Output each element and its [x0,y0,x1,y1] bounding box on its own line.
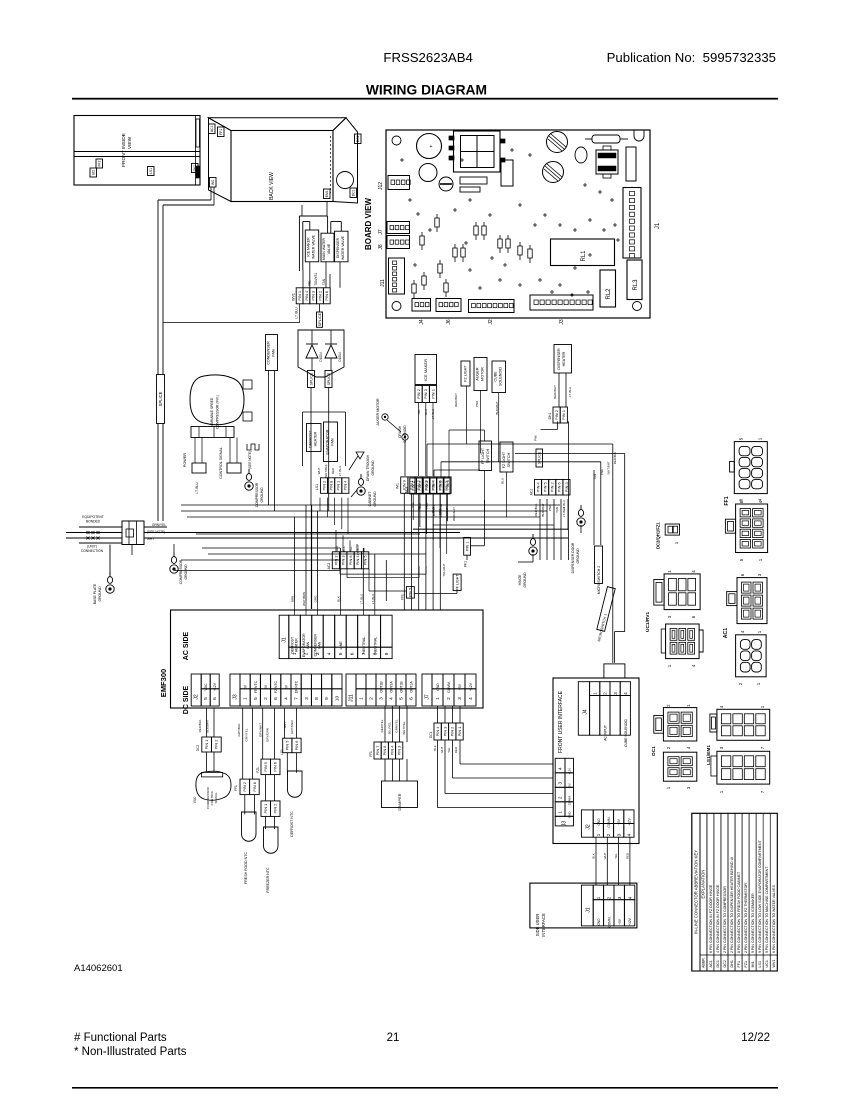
svg-text:GND: GND [568,812,572,818]
svg-text:2: 2 [603,692,609,695]
svg-text:FF1: FF1 [724,496,730,505]
svg-text:WIRING DIAGRAM: WIRING DIAGRAM [366,83,487,98]
svg-text:2: 2 [446,697,452,700]
svg-text:WHT/BHT: WHT/BHT [607,461,611,474]
svg-text:SIGNAL: SIGNAL [214,792,218,803]
svg-text:6: 6 [409,697,415,700]
svg-text:COMPRESSOR: COMPRESSOR [179,559,183,584]
svg-text:PIN 1: PIN 1 [457,727,462,737]
svg-text:3: 3 [558,782,564,785]
svg-text:PIN 2: PIN 2 [550,482,555,492]
svg-text:2: 2 [369,697,375,700]
svg-text:RL1: RL1 [581,250,587,262]
svg-text:SPLICE: SPLICE [327,372,331,385]
svg-text:3: 3 [613,692,619,695]
svg-text:BLK/WHT: BLK/WHT [206,719,210,733]
svg-text:PIN 3: PIN 3 [424,481,429,491]
svg-text:DEFROST NTC: DEFROST NTC [290,811,294,837]
svg-text:YEL: YEL [614,853,618,859]
svg-text:YEL: YEL [349,546,353,552]
svg-text:3: 3 [304,697,310,700]
svg-text:+12V: +12V [627,817,631,825]
svg-text:PIN 6: PIN 6 [324,291,329,301]
svg-text:FZ LIGHT: FZ LIGHT [502,451,506,468]
svg-text:WHT/YEL: WHT/YEL [402,721,406,735]
svg-text:FF1: FF1 [464,561,468,567]
svg-text:+: + [430,144,433,150]
svg-text:FRSS2623AB4: FRSS2623AB4 [383,50,472,65]
svg-text:TAN/YEL: TAN/YEL [314,272,318,285]
svg-text:4: 4 [468,697,474,700]
svg-text:PIN 2: PIN 2 [554,410,559,420]
svg-text:PIN 4: PIN 4 [417,480,422,491]
svg-text:2 PIN CONNECTION TO DISPENSER: 2 PIN CONNECTION TO DISPENSER HEATER BEH… [730,857,734,953]
svg-text:LS1: LS1 [315,484,319,490]
svg-text:COMM.: COMM. [607,816,611,827]
svg-text:RED/WHT: RED/WHT [439,503,443,516]
svg-text:J4: J4 [419,319,425,325]
svg-text:HINGE: HINGE [518,574,522,585]
svg-text:FF LIGHT: FF LIGHT [455,574,459,591]
svg-text:PIN 6: PIN 6 [273,762,278,772]
svg-text:YEL: YEL [447,747,451,753]
svg-text:4: 4 [558,767,564,770]
svg-text:DISPENSER: DISPENSER [557,348,561,370]
svg-text:PNK: PNK [548,505,552,511]
svg-text:LS1: LS1 [758,961,762,968]
svg-text:MOTOR: MOTOR [481,367,485,381]
svg-text:GRY/YEL: GRY/YEL [245,728,249,741]
svg-text:FF1: FF1 [234,785,238,791]
svg-text:DC1: DC1 [429,732,433,739]
svg-text:LT. BLU: LT. BLU [195,482,199,494]
svg-text:PIN 2: PIN 2 [273,804,278,814]
svg-text:7: 7 [294,697,300,700]
svg-text:A14062601: A14062601 [74,963,123,974]
svg-text:PIN 4: PIN 4 [435,726,440,737]
svg-text:AUGER MOTOR: AUGER MOTOR [376,398,380,425]
svg-text:FZ1: FZ1 [256,767,260,773]
svg-text:FF1: FF1 [737,961,741,968]
svg-text:SWITCH: SWITCH [486,448,490,463]
svg-text:YEL: YEL [411,502,415,508]
svg-text:GRY/BLK: GRY/BLK [237,724,241,737]
svg-text:DC2: DC2 [723,960,727,967]
svg-text:1: 1 [592,692,598,695]
svg-text:VIEW: VIEW [127,136,133,149]
svg-text:WHT: WHT [440,746,444,753]
svg-text:AC3: AC3 [405,487,409,494]
svg-text:LINE: LINE [339,641,343,650]
svg-text:EVAPORATOR: EVAPORATOR [326,429,330,454]
svg-text:+5V: +5V [618,918,622,925]
svg-text:PIN 1: PIN 1 [204,740,209,750]
svg-text:DC1: DC1 [351,189,355,196]
svg-text:(SEE NOTE): (SEE NOTE) [248,451,252,469]
svg-text:GND: GND [436,683,440,691]
svg-text:+5V: +5V [458,683,462,690]
svg-text:DAMPER: DAMPER [397,793,402,810]
svg-text:FF LIGHT: FF LIGHT [481,447,485,464]
svg-text:6: 6 [350,652,356,655]
svg-text:PIN 2: PIN 2 [416,389,421,399]
svg-text:COMM.: COMM. [607,916,611,927]
svg-text:J11: J11 [349,694,355,702]
svg-text:1: 1 [596,896,602,899]
svg-text:DC2: DC2 [356,135,360,142]
svg-text:BLK: BLK [592,853,596,859]
svg-text:ICE MAKER: ICE MAKER [307,237,311,257]
svg-text:5V: 5V [264,684,268,689]
svg-text:PIN 3: PIN 3 [442,727,447,737]
svg-text:PIN 2: PIN 2 [242,782,247,792]
svg-text:TAN: TAN [322,278,326,285]
svg-text:PIN 3: PIN 3 [564,482,569,492]
svg-text:RED/WHT: RED/WHT [553,385,557,399]
svg-text:UC1/RV1: UC1/RV1 [645,611,651,632]
svg-text:PNK: PNK [600,469,604,475]
svg-text:6 PIN CONNECTION TO WATER VALV: 6 PIN CONNECTION TO WATER VALVES [772,884,776,953]
svg-text:BLK: BLK [336,596,340,602]
svg-text:PIN 5: PIN 5 [263,762,268,772]
svg-text:LT. BLU: LT. BLU [359,594,363,604]
svg-text:FRONT USER INTERFACE: FRONT USER INTERFACE [558,690,564,753]
svg-text:AC2: AC2 [327,563,331,570]
svg-text:6 PIN CONNECTION IN FZ DOOR HI: 6 PIN CONNECTION IN FZ DOOR HINGE [709,884,713,953]
svg-text:LT. BLU: LT. BLU [568,387,572,397]
svg-text:OUT2B: OUT2B [380,681,384,693]
svg-text:GROUND: GROUND [371,460,375,476]
svg-text:RED: RED [625,853,629,859]
svg-text:2: 2 [263,697,269,700]
svg-text:* Non-Illustrated Parts: * Non-Illustrated Parts [74,1046,187,1058]
svg-text:PIN 5: PIN 5 [285,741,290,751]
svg-text:FAN: FAN [331,438,335,446]
svg-text:GROUND: GROUND [184,564,188,580]
svg-text:PIN 3: PIN 3 [397,746,402,756]
svg-text:J3: J3 [559,319,565,325]
svg-text:D1004: D1004 [338,352,342,362]
svg-text:2: 2 [607,896,613,899]
svg-text:SWITCH: SWITCH [507,452,511,467]
svg-text:GRN/YEL: GRN/YEL [395,719,399,733]
svg-text:9 PIN CONNECTION TO LOW SIDE E: 9 PIN CONNECTION TO LOW SIDE EVAPORATOR … [758,839,762,953]
svg-text:2: 2 [606,833,612,836]
svg-text:4: 4 [327,652,333,655]
svg-text:COMM.: COMM. [568,795,572,805]
svg-text:10: 10 [334,696,340,702]
svg-text:BLU/YEL: BLU/YEL [388,722,392,735]
svg-text:2: 2 [558,796,564,799]
svg-text:PIN 2: PIN 2 [411,481,416,491]
svg-text:3: 3 [457,697,463,700]
svg-text:FF1: FF1 [401,594,405,600]
svg-text:J7: J7 [378,229,384,235]
svg-text:WATER VALVE: WATER VALVE [312,234,316,259]
svg-text:BLK: BLK [418,503,422,508]
svg-text:PIN 4: PIN 4 [389,745,394,756]
svg-text:PIN 3: PIN 3 [444,481,449,491]
svg-text:PIN 4: PIN 4 [343,480,348,491]
svg-text:RED: RED [454,747,458,753]
svg-text:BLK/WHT: BLK/WHT [432,503,436,516]
svg-text:NEUTRAL: NEUTRAL [362,637,366,654]
svg-text:FF NTC: FF NTC [254,680,258,693]
svg-text:LT. BLU: LT. BLU [295,307,299,319]
svg-text:SOLENOID: SOLENOID [499,367,503,386]
svg-text:RED/WHT: RED/WHT [452,507,456,521]
svg-text:GRN/YEL: GRN/YEL [152,523,166,527]
svg-text:FAN: FAN [306,641,310,648]
svg-text:PIN 8: PIN 8 [382,746,387,756]
svg-text:POWER: POWER [183,453,187,468]
svg-text:FZ1: FZ1 [744,961,748,968]
svg-text:J1: J1 [655,222,661,229]
svg-text:5V: 5V [244,684,248,689]
svg-text:VARIABLE SPEED: VARIABLE SPEED [210,397,214,426]
svg-text:GND: GND [597,818,601,826]
svg-text:WHT/BLK: WHT/BLK [324,464,328,477]
svg-text:PIN 2: PIN 2 [450,727,455,737]
svg-text:INTERFACE: INTERFACE [541,913,546,937]
svg-text:PIN 2: PIN 2 [214,740,219,750]
svg-text:VALVE: VALVE [327,243,331,254]
svg-text:CRUSH: CRUSH [398,425,402,438]
svg-text:ORG: ORG [314,595,318,603]
svg-text:2 PIN CONNECTION TO COMPRESSOR: 2 PIN CONNECTION TO COMPRESSOR [723,886,727,953]
svg-text:FF1: FF1 [219,129,223,135]
svg-text:RED/BLK: RED/BLK [198,720,202,733]
svg-text:PIN 4: PIN 4 [431,480,436,491]
svg-text:J12: J12 [378,182,384,190]
svg-text:FREEZER NTC: FREEZER NTC [266,867,270,893]
svg-text:WHT: WHT [603,852,607,859]
svg-text:BASE PLATE: BASE PLATE [93,583,97,604]
svg-text:FRONT INSIDE: FRONT INSIDE [121,133,127,167]
svg-text:PNK: PNK [475,401,479,407]
svg-text:YEL: YEL [417,409,421,415]
svg-text:AUGER: AUGER [476,367,480,380]
svg-text:BONDED: BONDED [86,520,101,524]
svg-text:HEATER: HEATER [314,431,318,446]
svg-text:(UNIT): (UNIT) [87,545,97,549]
svg-text:J2: J2 [586,824,592,830]
svg-text:4: 4 [623,692,629,695]
svg-text:DC2/QH1/FZ1: DC2/QH1/FZ1 [656,522,661,549]
svg-text:J6: J6 [446,319,452,325]
svg-text:4: 4 [389,697,395,700]
svg-text:DF NTC: DF NTC [295,680,299,693]
svg-text:ICE MAKER: ICE MAKER [423,359,428,381]
svg-text:GRY/WHT: GRY/WHT [259,723,263,737]
svg-text:21: 21 [387,1032,400,1044]
svg-text:AC SIDE: AC SIDE [183,631,190,660]
svg-text:PIN 3: PIN 3 [341,555,346,565]
svg-text:BLK: BLK [433,745,437,751]
svg-text:+12V: +12V [568,768,572,775]
svg-text:PIN 5: PIN 5 [409,588,413,597]
svg-text:EXPLANATION: EXPLANATION [701,870,706,899]
svg-text:HEATER: HEATER [562,351,566,366]
svg-text:PIN 4: PIN 4 [535,482,540,493]
svg-text:GRY/GRN: GRY/GRN [266,728,270,742]
svg-text:DISPENSER: DISPENSER [336,237,340,258]
svg-text:J1: J1 [282,637,288,643]
svg-text:CONDENSER: CONDENSER [267,341,271,365]
svg-text:PIN 1: PIN 1 [430,389,435,399]
svg-text:IN-LINE CONNECTOR ABBREVIATION: IN-LINE CONNECTOR ABBREVIATION KEY [694,850,699,934]
svg-text:LT. BLU: LT. BLU [371,594,375,604]
svg-text:LT. BLU: LT. BLU [338,466,342,476]
svg-text:1: 1 [596,833,602,836]
svg-text:MAIN WATER: MAIN WATER [322,238,326,260]
svg-text:PIN 2: PIN 2 [317,291,322,301]
svg-text:BLK: BLK [342,546,346,552]
svg-text:J2: J2 [488,319,494,325]
svg-text:OUT1B: OUT1B [400,681,404,693]
svg-text:SPLICE: SPLICE [538,451,542,464]
svg-text:4: 4 [627,896,633,899]
svg-text:BLU: BLU [501,478,505,484]
svg-text:5V: 5V [284,684,288,689]
svg-text:PIN 4: PIN 4 [355,555,360,566]
svg-text:PIN 1: PIN 1 [297,291,302,301]
svg-text:SPLICE: SPLICE [158,391,163,406]
svg-text:COMPRESSOR: COMPRESSOR [255,482,259,507]
svg-text:WHT: WHT [317,467,321,474]
svg-text:PIN 7: PIN 7 [375,746,380,756]
svg-text:OUT1A: OUT1A [410,681,414,693]
svg-text:UC1: UC1 [765,960,769,967]
svg-text:9 PIN CONNECTION TO ICEMAKER: 9 PIN CONNECTION TO ICEMAKER [751,893,755,953]
svg-text:12/22: 12/22 [741,1032,770,1044]
svg-text:CUBE: CUBE [494,371,498,382]
svg-text:LS1: LS1 [149,168,153,174]
svg-text:1: 1 [359,697,365,700]
svg-text:BACK VIEW: BACK VIEW [269,172,275,200]
svg-text:PIN 4: PIN 4 [304,290,309,301]
svg-text:OUT2A: OUT2A [390,681,394,693]
svg-text:AC1: AC1 [709,960,713,967]
svg-text:GROUND: GROUND [98,586,102,602]
svg-text:J3: J3 [562,821,568,827]
svg-text:GND: GND [597,918,601,926]
svg-text:9: 9 [384,652,390,655]
svg-text:9 PIN CONNECTION TO MACHINE CO: 9 PIN CONNECTION TO MACHINE COMPARTMENT [765,866,769,953]
svg-text:WATER VALVE: WATER VALVE [341,235,345,260]
svg-text:DC1: DC1 [716,960,720,967]
svg-text:COMPRESSOR (INV.): COMPRESSOR (INV.) [216,395,220,429]
svg-text:PIN 8: PIN 8 [329,481,334,491]
svg-text:AC INPUT: AC INPUT [603,725,607,741]
svg-text:PIN 2: PIN 2 [321,481,326,491]
svg-text:FZ NTC: FZ NTC [274,680,278,693]
svg-text:6: 6 [212,697,218,700]
svg-text:AC1: AC1 [723,628,729,638]
svg-text:J11: J11 [380,279,386,287]
svg-text:RED/BLK: RED/BLK [534,504,538,517]
svg-text:TAN: TAN [593,474,597,480]
svg-text:PIN 1: PIN 1 [336,481,341,491]
svg-text:PIN 6: PIN 6 [252,782,257,792]
svg-text:3: 3 [616,833,622,836]
svg-text:RED/WHT: RED/WHT [454,393,458,407]
svg-text:GROUND: GROUND [260,487,264,503]
svg-text:1: 1 [435,697,441,700]
svg-text:DC2: DC2 [196,745,200,752]
svg-text:GRY: GRY [283,722,287,728]
svg-text:BLK/WHT: BLK/WHT [541,503,545,517]
svg-text:+12V: +12V [469,682,473,691]
svg-text:5: 5 [399,697,405,700]
svg-text:NEUTRAL: NEUTRAL [374,637,378,654]
svg-text:VSC: VSC [193,796,197,803]
svg-text:YEL/WHT: YEL/WHT [442,563,446,576]
svg-text:IM1: IM1 [211,179,215,185]
svg-text:+5V: +5V [617,818,621,825]
svg-text:+12V: +12V [213,682,217,691]
svg-text:EQUIPOTENT: EQUIPOTENT [82,515,103,519]
svg-text:PIN 5: PIN 5 [543,482,548,492]
svg-text:EM1: EM1 [325,190,329,197]
svg-text:TAN: TAN [555,507,559,513]
svg-text:PIN 6: PIN 6 [348,555,353,565]
svg-text:DISPENSER DOOR: DISPENSER DOOR [571,542,575,573]
svg-text:FF2: FF2 [97,160,101,166]
svg-text:5: 5 [253,697,259,700]
svg-text:8: 8 [314,697,320,700]
svg-text:FAN: FAN [318,641,322,648]
svg-text:WV1: WV1 [292,293,296,301]
svg-text:SPLICE: SPLICE [309,372,313,385]
svg-text:RL3: RL3 [633,279,639,291]
svg-text:BRN: BRN [291,596,295,602]
svg-text:DH1: DH1 [730,960,734,967]
svg-text:IM1: IM1 [751,961,755,967]
svg-text:FRESH FOOD NTC: FRESH FOOD NTC [244,852,248,884]
svg-text:4 PIN CONNECTION IN FZ DOOR HI: 4 PIN CONNECTION IN FZ DOOR HINGE [716,884,720,953]
svg-text:IM1: IM1 [396,483,400,489]
svg-text:2 PIN CONNECTION TO FZ THERMIS: 2 PIN CONNECTION TO FZ THERMISTOR [744,883,748,953]
svg-text:DC1: DC1 [651,746,657,756]
svg-text:# Functional Parts: # Functional Parts [74,1032,167,1044]
svg-text:J2: J2 [194,694,200,700]
svg-text:4: 4 [283,697,289,700]
svg-text:PIN 3: PIN 3 [423,389,428,399]
svg-text:CUBE SOLENOID: CUBE SOLENOID [624,719,628,747]
svg-text:J7: J7 [425,694,431,700]
svg-text:FF1: FF1 [369,751,373,757]
svg-text:UI2: UI2 [91,170,95,175]
svg-text:3: 3 [379,697,385,700]
svg-text:RED/BLK: RED/BLK [613,452,617,464]
svg-text:9: 9 [324,697,330,700]
svg-text:RED/YEL: RED/YEL [380,719,384,732]
svg-text:PIN 1: PIN 1 [263,804,268,814]
svg-text:J4: J4 [583,709,589,715]
svg-text:EMF300: EMF300 [159,669,168,697]
svg-text:J1: J1 [586,907,592,913]
svg-text:3: 3 [617,896,623,899]
svg-text:HEATER: HEATER [295,638,299,652]
svg-text:GROUND: GROUND [576,548,580,564]
svg-text:MICROSWITCH 2: MICROSWITCH 2 [597,566,601,594]
svg-text:GROUND: GROUND [373,491,377,507]
svg-text:BLK/WHT: BLK/WHT [495,401,499,415]
svg-text:AC1: AC1 [529,489,533,496]
svg-text:8 PIN CONNECTION TO FRESH FOOD: 8 PIN CONNECTION TO FRESH FOOD CABINET [737,871,741,953]
svg-text:LT. BLU: LT. BLU [562,507,566,517]
